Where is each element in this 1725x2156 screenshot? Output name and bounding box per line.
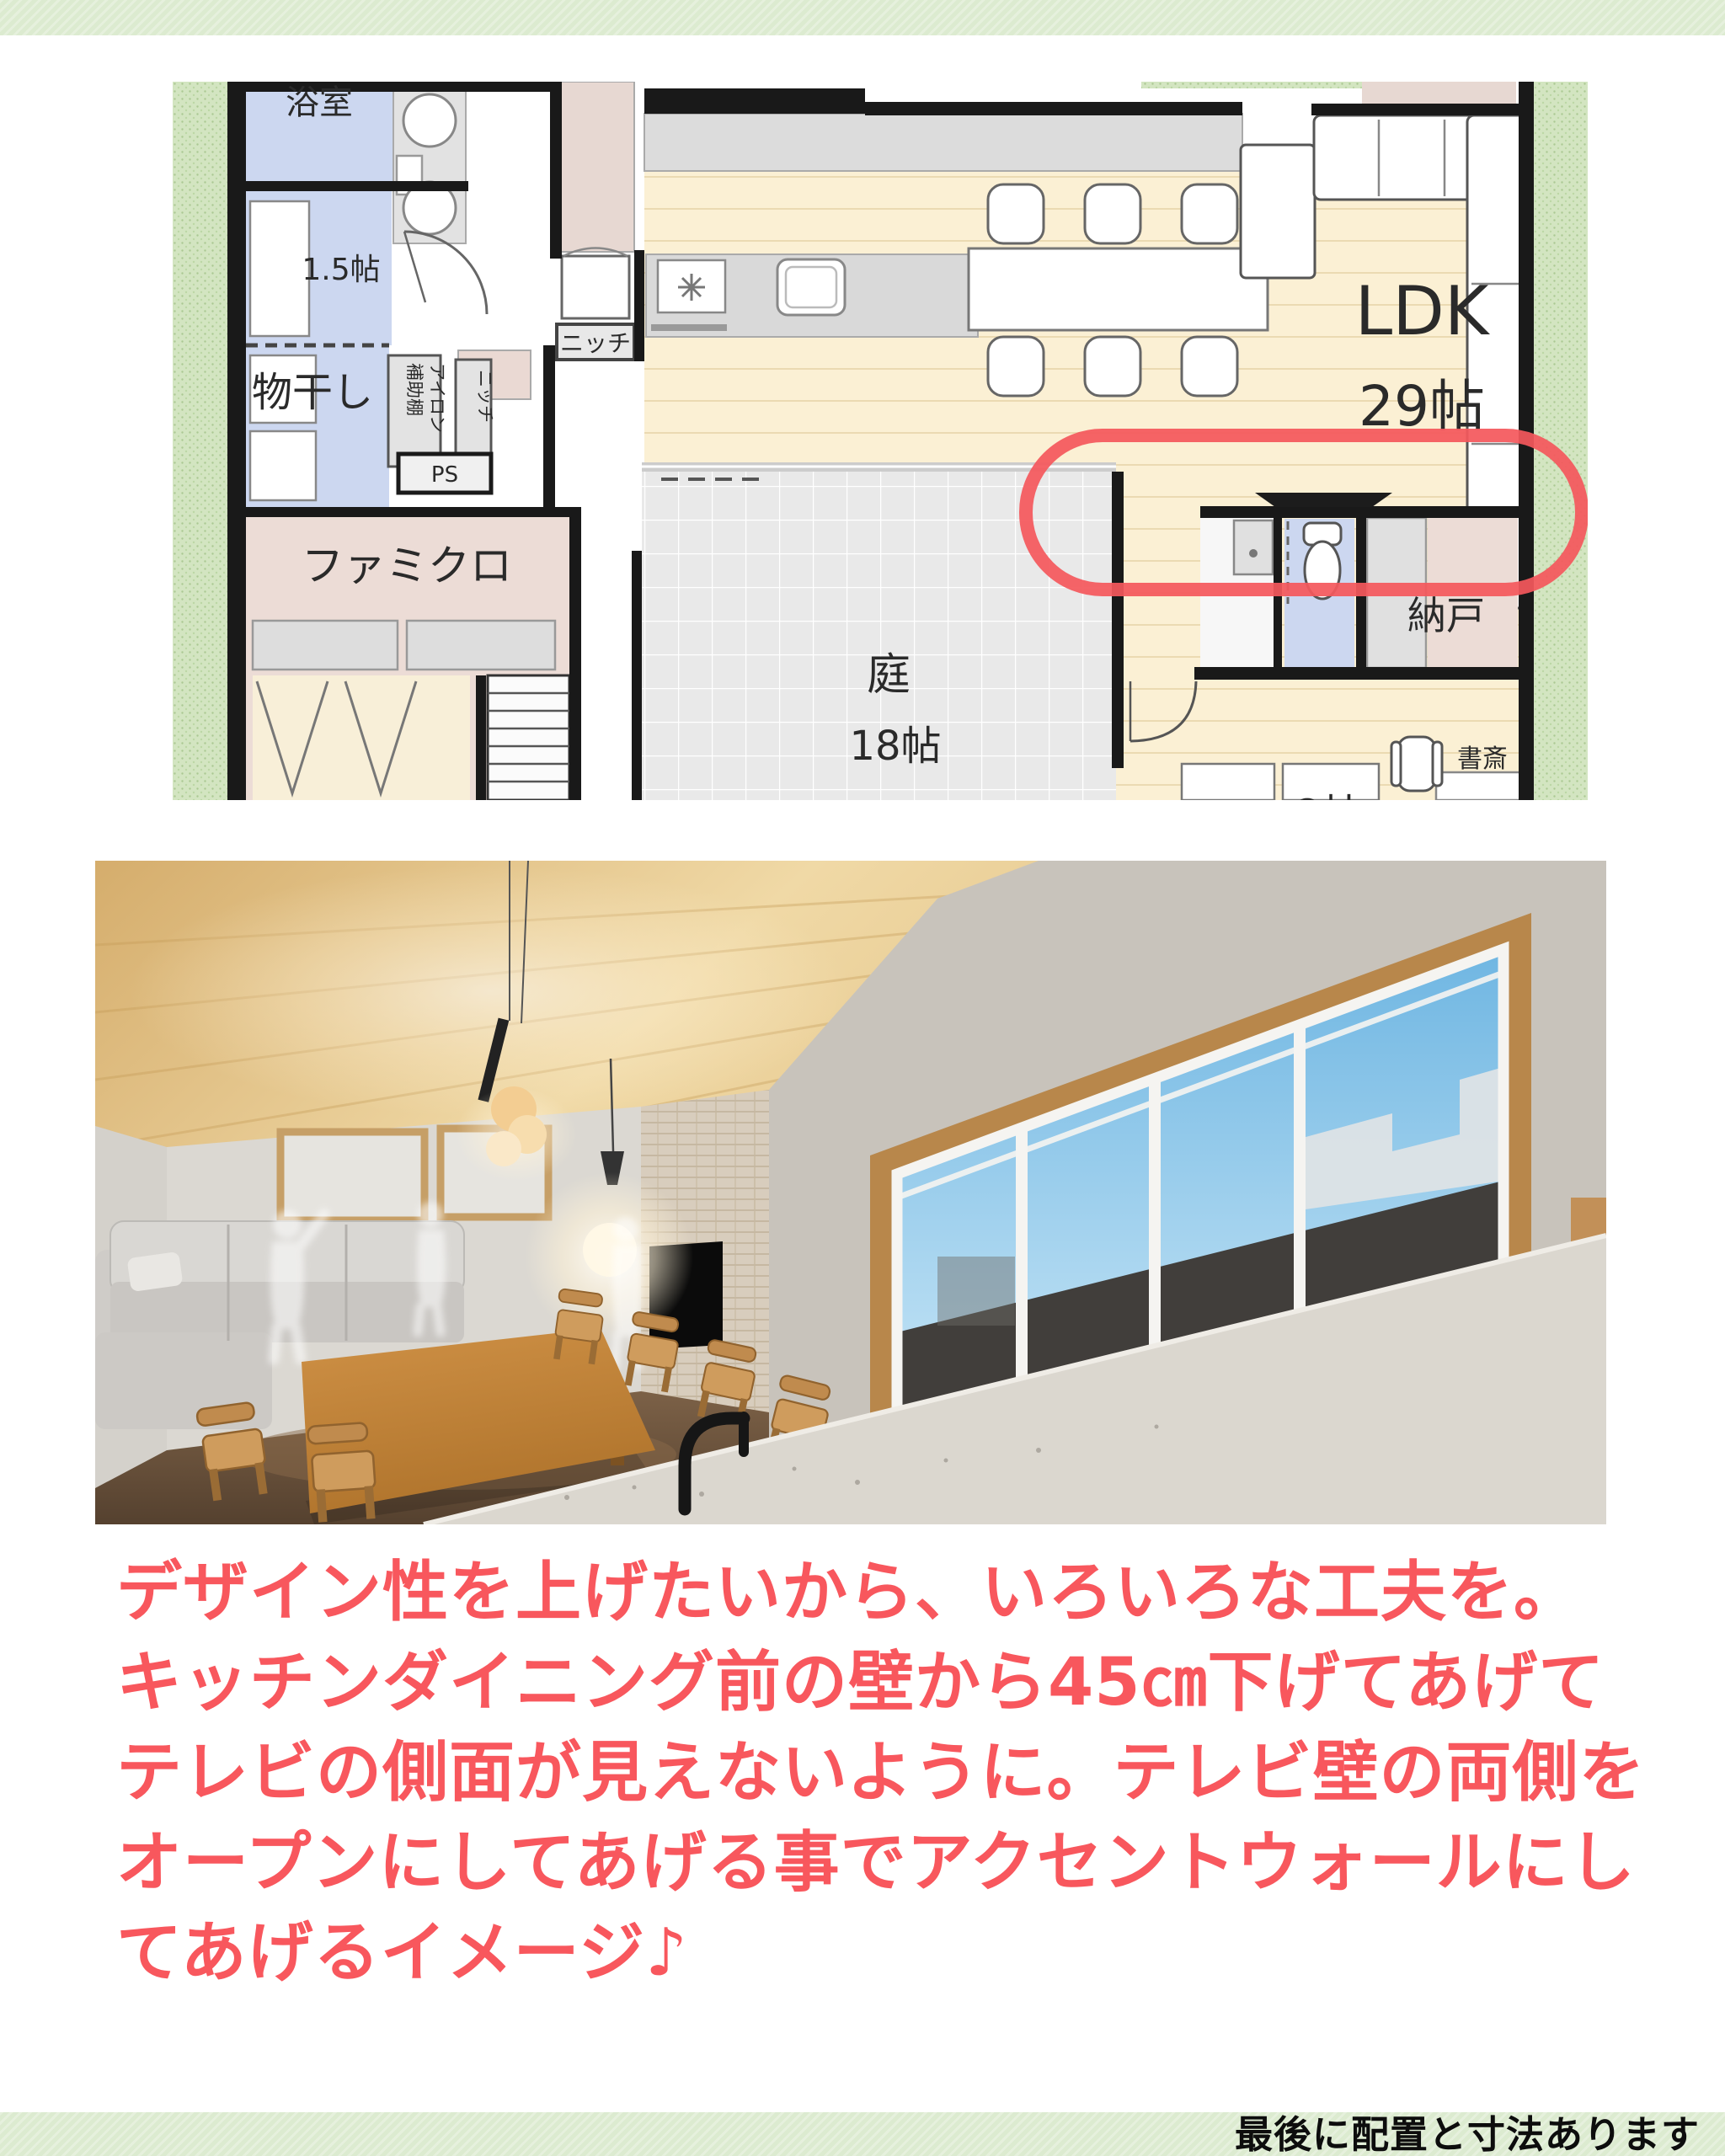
fridge-icon	[562, 256, 629, 318]
floor-plan-svg: 浴室 1.5帖 物干し 補助棚 アイロン ニッチ PS ニッチ ファミクロ LD…	[173, 82, 1588, 800]
chair-icon	[988, 184, 1044, 243]
label-ps: PS	[431, 462, 458, 488]
label-bathroom: 浴室	[286, 83, 353, 122]
closet-box	[407, 621, 555, 670]
bottom-banner-text: 最後に配置と寸法あります	[1235, 2112, 1700, 2156]
label-drying-room: 物干し	[252, 369, 373, 416]
label-ldk: LDK	[1355, 272, 1491, 350]
washbasin-icon	[1234, 520, 1273, 574]
tv-icon	[1255, 493, 1392, 507]
caption-text: デザイン性を上げたいから、いろいろな工夫を。 キッチンダイニング前の壁から45㎝…	[116, 1548, 1645, 1999]
floor-plan: 浴室 1.5帖 物干し 補助棚 アイロン ニッチ PS ニッチ ファミクロ LD…	[173, 82, 1588, 800]
label-garden: 庭	[867, 650, 911, 701]
caption-line-3: テレビの側面が見えないように。テレビ壁の両側を	[116, 1728, 1645, 1818]
interior-render	[95, 861, 1606, 1524]
label-utility-size: 1.5帖	[302, 253, 380, 287]
chair-icon	[1085, 184, 1140, 243]
washer-icon	[403, 94, 456, 147]
caption-line-5: てあげるイメージ♪	[116, 1908, 1645, 1999]
top-banner	[0, 0, 1725, 35]
closet-box	[253, 621, 398, 670]
kitchen-island	[646, 254, 978, 337]
tv-reflection	[937, 1257, 1015, 1326]
desk	[1436, 772, 1520, 800]
kitchen-storage-column	[557, 82, 634, 360]
sofa-pillow	[127, 1251, 184, 1292]
label-room-partial: 8帖	[1294, 791, 1363, 800]
stairs	[488, 675, 569, 800]
post-page: 浴室 1.5帖 物干し 補助棚 アイロン ニッチ PS ニッチ ファミクロ LD…	[0, 0, 1725, 2156]
label-aux-shelf: 補助棚	[404, 363, 425, 416]
chair-icon	[1182, 337, 1237, 396]
caption-line-2: キッチンダイニング前の壁から45㎝下げてあげて	[116, 1638, 1645, 1728]
interior-render-svg	[95, 861, 1606, 1524]
label-study: 書斎	[1457, 744, 1508, 774]
chair-icon	[1182, 184, 1237, 243]
dining-table	[969, 248, 1268, 330]
label-iron: アイロン	[427, 363, 447, 433]
chair-icon	[988, 337, 1044, 396]
label-family-closet: ファミクロ	[302, 542, 512, 590]
label-niche-kitchen: ニッチ	[560, 329, 631, 357]
dining-set	[969, 184, 1268, 396]
bottom-banner: 最後に配置と寸法あります	[0, 2112, 1725, 2156]
caption-line-1: デザイン性を上げたいから、いろいろな工夫を。	[116, 1548, 1645, 1638]
desk-chair-icon	[1391, 737, 1442, 791]
top-right-cabinet	[1362, 82, 1516, 104]
caption-line-4: オープンにしてあげる事でアクセントウォールにし	[116, 1818, 1645, 1908]
label-garden-size: 18帖	[849, 723, 941, 770]
label-niche-vertical: ニッチ	[475, 370, 495, 423]
label-storage: 納戸	[1407, 593, 1485, 638]
chair-icon	[1085, 337, 1140, 396]
laundry-machine-area	[393, 82, 466, 243]
kitchen-back-counter	[644, 114, 1242, 171]
